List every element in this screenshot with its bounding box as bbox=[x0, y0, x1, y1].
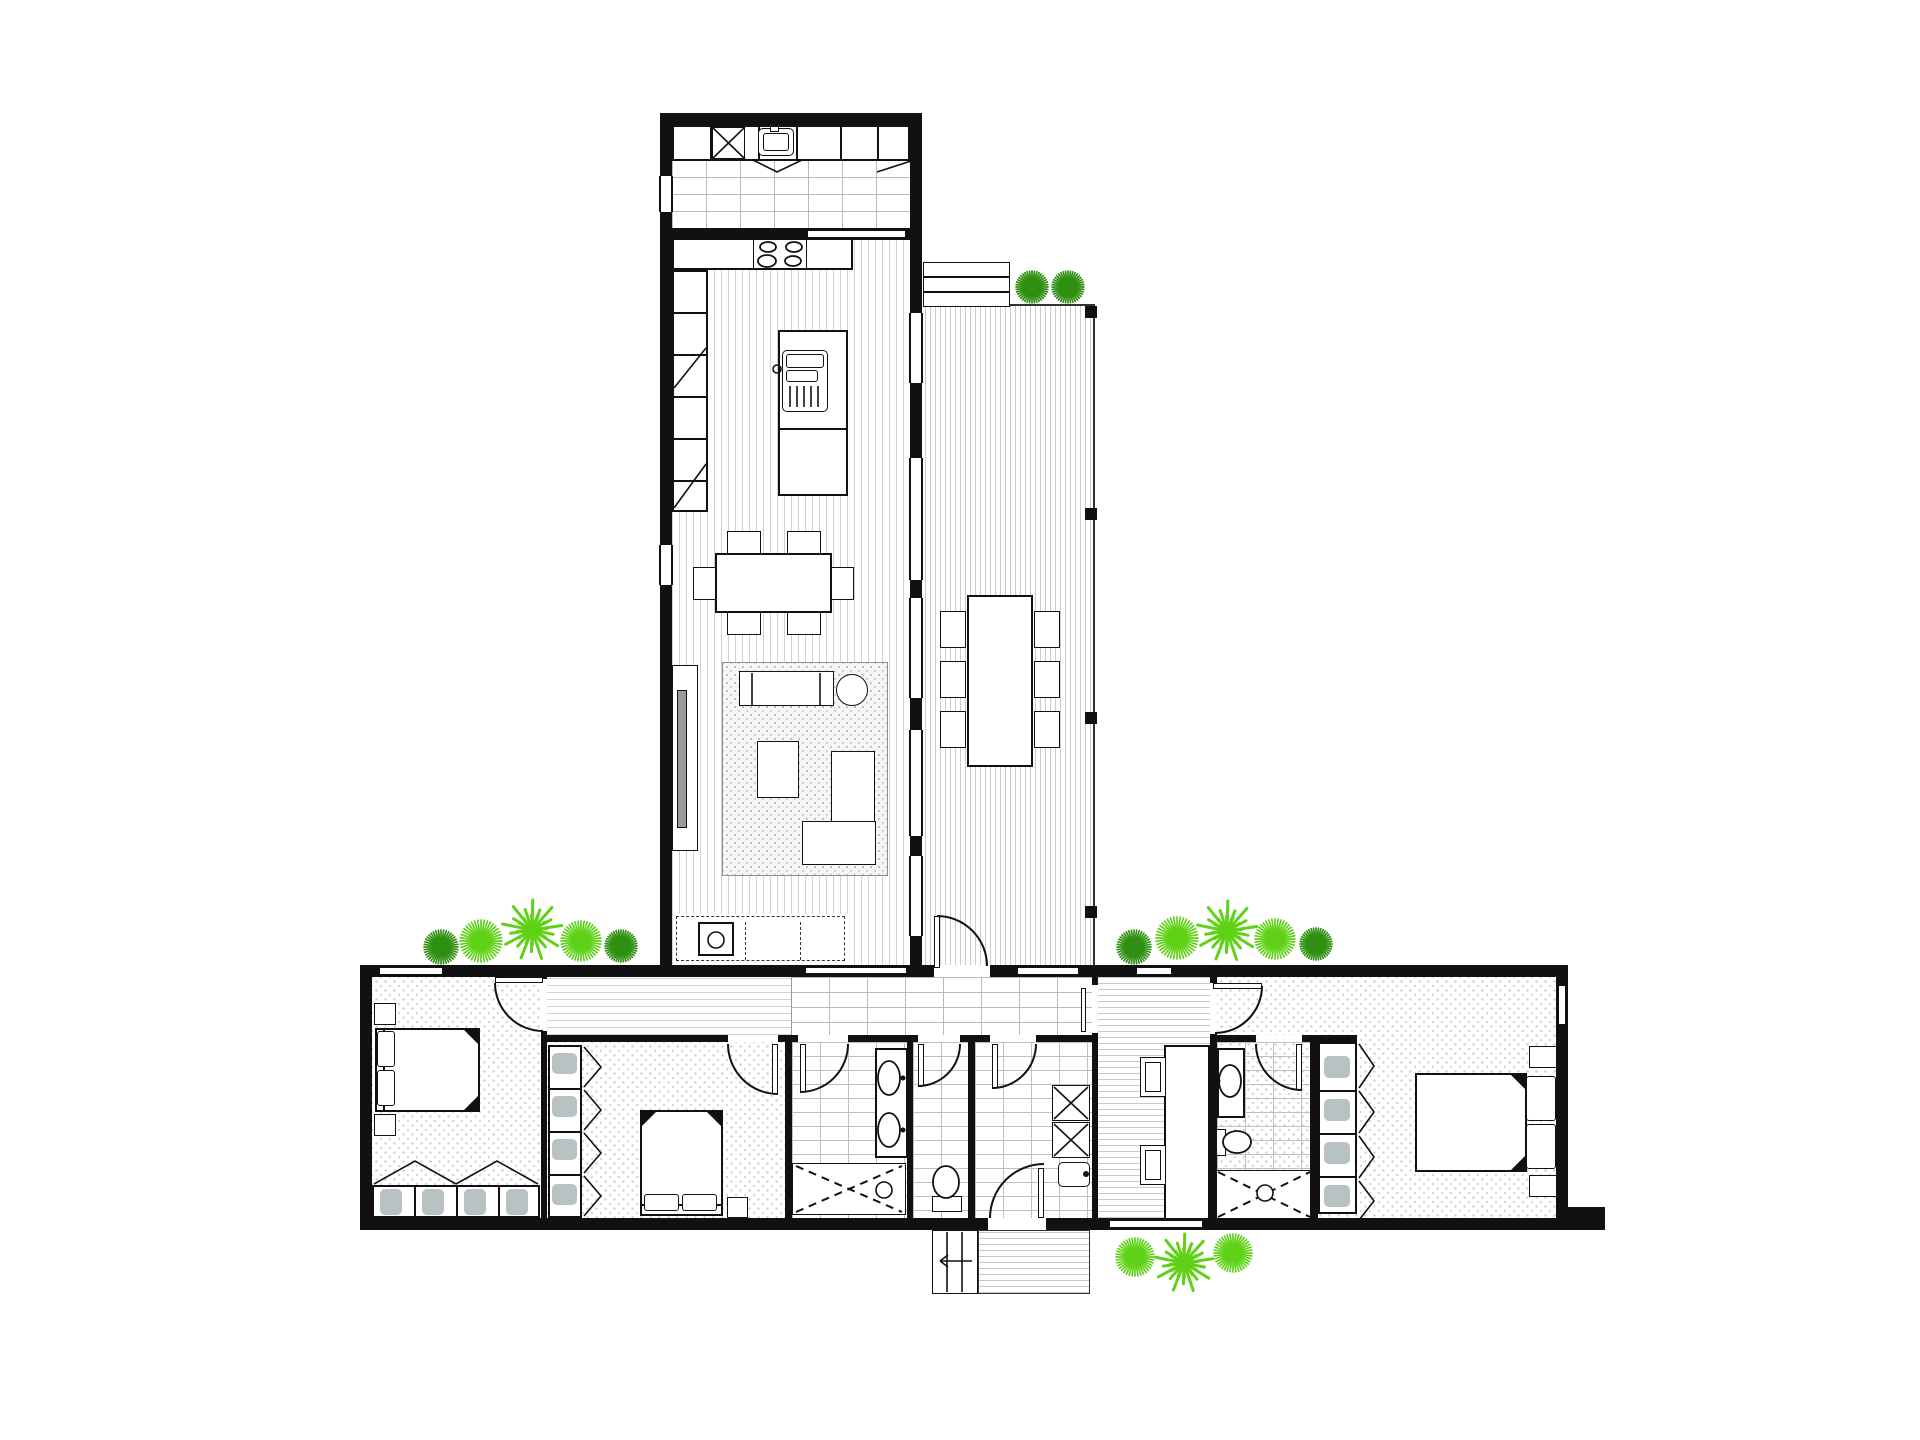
wc-laundry-wall bbox=[968, 1042, 975, 1218]
deck-chair bbox=[1034, 711, 1060, 748]
deck-chair bbox=[940, 711, 966, 748]
dining-chair bbox=[787, 531, 821, 554]
mudroom-cabinet bbox=[1164, 1045, 1210, 1221]
rear-door-opening bbox=[988, 1218, 1046, 1230]
master-pillow bbox=[1526, 1124, 1556, 1169]
robe-divider bbox=[1318, 1176, 1357, 1178]
flower-bush-icon bbox=[1156, 1234, 1213, 1290]
wardrobe-shelf-item bbox=[552, 1139, 577, 1160]
flower-bush-icon bbox=[503, 900, 562, 958]
robe-shelf-item bbox=[1324, 1056, 1350, 1078]
tv-screen bbox=[677, 690, 687, 828]
deck-post bbox=[1085, 306, 1097, 318]
round-bush-icon bbox=[1300, 928, 1332, 960]
deck-chair bbox=[940, 661, 966, 698]
glazing bbox=[909, 598, 923, 698]
bench-divider bbox=[840, 125, 842, 161]
deck-chair bbox=[1034, 661, 1060, 698]
wardrobe-shelf-item bbox=[506, 1189, 528, 1215]
wardrobe-shelf-item bbox=[464, 1189, 486, 1215]
round-bush-icon bbox=[424, 930, 458, 964]
bench-divider bbox=[877, 125, 879, 161]
cooktop bbox=[753, 239, 807, 269]
deck-post bbox=[1085, 712, 1097, 724]
deck-step bbox=[923, 262, 1010, 277]
round-bush-icon bbox=[460, 920, 502, 962]
wardrobe-divider bbox=[548, 1174, 582, 1176]
bedside-table bbox=[1529, 1046, 1557, 1068]
wing-bottom-wall bbox=[360, 1218, 1568, 1230]
bed2-door-leaf bbox=[772, 1044, 778, 1094]
deck-chair bbox=[940, 611, 966, 648]
glazing bbox=[909, 313, 923, 383]
floor-junction-line bbox=[791, 977, 792, 1035]
dining-chair bbox=[831, 567, 854, 600]
round-bush-icon bbox=[561, 921, 601, 961]
side-table-round bbox=[836, 674, 868, 706]
bed2-bath-wall bbox=[785, 1035, 792, 1218]
laundry-appliance bbox=[1052, 1085, 1090, 1121]
glazing bbox=[909, 730, 923, 836]
bedside-table bbox=[374, 1114, 396, 1136]
master-door-leaf bbox=[1213, 983, 1262, 989]
robe-shelf-item bbox=[1324, 1142, 1350, 1164]
bed2-pillow bbox=[682, 1194, 717, 1211]
ensuite-door-leaf bbox=[1296, 1044, 1302, 1090]
bed1-pillow bbox=[377, 1070, 395, 1106]
bed1-door-opening bbox=[541, 979, 547, 1031]
ensuite-shower bbox=[1215, 1170, 1313, 1220]
deck-edge-right bbox=[1093, 306, 1095, 967]
master-pillow bbox=[1526, 1076, 1556, 1121]
ensuite-vanity bbox=[1217, 1048, 1245, 1118]
island-divider bbox=[778, 428, 848, 430]
pantry-cabinets bbox=[672, 270, 708, 512]
cavity-slider bbox=[806, 966, 906, 975]
washing-machine bbox=[712, 127, 745, 159]
bathroom-vanity bbox=[875, 1048, 908, 1158]
pantry-divider bbox=[672, 354, 708, 356]
deck-post bbox=[1085, 508, 1097, 520]
mudroom-bench-inner bbox=[1145, 1150, 1161, 1180]
ensuite-door-opening bbox=[1256, 1035, 1302, 1042]
floor-plan bbox=[0, 0, 1920, 1440]
window bbox=[659, 545, 673, 585]
laundry-sink-bowl bbox=[763, 133, 789, 151]
deck-door-opening bbox=[934, 965, 990, 977]
bath-door-leaf bbox=[800, 1044, 806, 1092]
robe-divider bbox=[1318, 1133, 1357, 1135]
round-bush-icon bbox=[1156, 917, 1198, 959]
block-top-wall bbox=[660, 113, 922, 127]
wardrobe-shelf-item bbox=[552, 1053, 577, 1074]
round-bush-icon bbox=[1117, 930, 1151, 964]
pantry-divider bbox=[672, 312, 708, 314]
round-bush-icon bbox=[1116, 1238, 1154, 1276]
wardrobe-shelf-item bbox=[380, 1189, 402, 1215]
dining-chair bbox=[727, 531, 761, 554]
deck-step bbox=[923, 277, 1010, 292]
round-bush-icon bbox=[1214, 1234, 1252, 1272]
dining-table bbox=[715, 553, 832, 613]
chaise-sofa-seat bbox=[802, 821, 876, 865]
mudroom-slider-opening bbox=[1092, 985, 1098, 1033]
laundry-appliance bbox=[1052, 1122, 1090, 1158]
island-sink-bowl bbox=[786, 354, 824, 368]
mudroom-bench-inner bbox=[1145, 1062, 1161, 1092]
window bbox=[1557, 986, 1567, 1024]
wardrobe-divider bbox=[548, 1131, 582, 1133]
robe-shelf-item bbox=[1324, 1185, 1350, 1207]
pantry-divider bbox=[672, 438, 708, 440]
wardrobe-shelf-item bbox=[422, 1189, 444, 1215]
wardrobe-shelf-item bbox=[552, 1096, 577, 1117]
dining-chair bbox=[727, 612, 761, 635]
pantry-divider bbox=[672, 396, 708, 398]
flower-bush-icon bbox=[1198, 901, 1257, 959]
round-bush-icon bbox=[1052, 271, 1084, 303]
wc-door-leaf bbox=[918, 1044, 924, 1086]
wc-cistern bbox=[932, 1196, 962, 1212]
wc-door-opening bbox=[918, 1035, 960, 1042]
coffee-table bbox=[757, 741, 799, 798]
bed1-door-leaf bbox=[495, 977, 543, 983]
master-bed bbox=[1415, 1073, 1527, 1172]
sofa bbox=[739, 671, 834, 706]
robe-shelf-item bbox=[1324, 1099, 1350, 1121]
wardrobe-divider bbox=[414, 1185, 416, 1218]
round-bush-icon bbox=[1255, 919, 1295, 959]
bedside-table bbox=[374, 1003, 396, 1025]
bath-wc-wall bbox=[907, 1042, 913, 1218]
ensuite-robe-wall bbox=[1310, 1042, 1318, 1220]
overhead-divider-dashed bbox=[800, 922, 801, 960]
island-sink-bowl bbox=[786, 370, 818, 382]
bench-divider bbox=[796, 125, 798, 161]
dining-chair bbox=[787, 612, 821, 635]
robe-divider bbox=[1318, 1090, 1357, 1092]
overhead-divider-dashed bbox=[745, 922, 746, 960]
glazing bbox=[909, 856, 923, 936]
bed1-pillow bbox=[377, 1031, 395, 1067]
laundry-tub bbox=[1058, 1162, 1090, 1187]
rear-door-leaf bbox=[1038, 1168, 1044, 1218]
laundry-door-opening bbox=[990, 1035, 1036, 1042]
bathroom-shower bbox=[792, 1163, 906, 1215]
deck-step bbox=[923, 292, 1010, 307]
dining-chair bbox=[693, 567, 716, 600]
entry-walkway-floor bbox=[791, 977, 1092, 1035]
bedside-table bbox=[1529, 1175, 1557, 1197]
window bbox=[1137, 966, 1171, 976]
wardrobe-divider bbox=[498, 1185, 500, 1218]
laundry-door-leaf bbox=[992, 1044, 998, 1088]
cavity-slider bbox=[808, 229, 905, 239]
wardrobe-divider bbox=[456, 1185, 458, 1218]
outdoor-dining-table bbox=[967, 595, 1033, 767]
pantry-divider bbox=[672, 480, 708, 482]
deck-post bbox=[1085, 906, 1097, 918]
mudroom-slider-leaf bbox=[1081, 988, 1086, 1032]
wardrobe-divider bbox=[548, 1088, 582, 1090]
deck-chair bbox=[1034, 611, 1060, 648]
window bbox=[659, 176, 673, 212]
window bbox=[1018, 966, 1078, 976]
deck-door-leaf bbox=[934, 916, 940, 968]
rear-porch bbox=[978, 1230, 1090, 1294]
bath-door-opening bbox=[798, 1035, 848, 1042]
wing-left-wall bbox=[360, 965, 372, 1230]
window bbox=[1110, 1219, 1202, 1229]
round-bush-icon bbox=[605, 930, 637, 962]
bedside-table bbox=[727, 1197, 748, 1218]
hallway-floor bbox=[547, 977, 791, 1035]
laundry-top-floor bbox=[672, 160, 910, 228]
bed2-pillow bbox=[644, 1194, 679, 1211]
bed2-door-opening bbox=[728, 1035, 778, 1042]
glazing bbox=[909, 458, 923, 580]
wardrobe-shelf-item bbox=[552, 1184, 577, 1205]
rear-stairs bbox=[932, 1230, 978, 1294]
bench-sink-module bbox=[698, 922, 734, 956]
round-bush-icon bbox=[1016, 271, 1048, 303]
window bbox=[380, 966, 442, 976]
master-door-opening bbox=[1210, 983, 1217, 1034]
